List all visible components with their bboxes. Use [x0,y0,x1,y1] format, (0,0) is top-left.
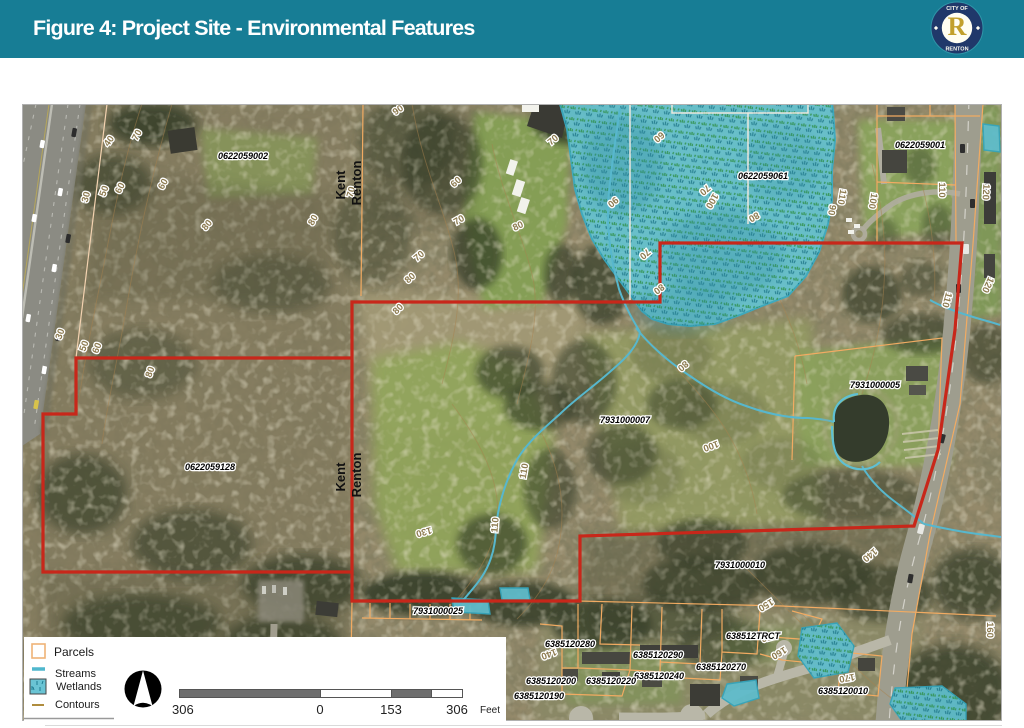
svg-text:6385120010: 6385120010 [818,686,868,696]
svg-text:Kent: Kent [333,462,348,492]
svg-text:638512TRCT: 638512TRCT [726,631,782,641]
svg-text:153: 153 [380,702,402,717]
svg-text:CITY OF: CITY OF [946,6,968,12]
svg-text:Renton: Renton [349,161,364,206]
svg-text:0622059002: 0622059002 [218,151,268,161]
svg-text:0622059001: 0622059001 [895,140,945,150]
svg-text:Parcels: Parcels [54,645,94,659]
svg-text:306: 306 [446,702,468,717]
svg-text:7931000010: 7931000010 [715,560,765,570]
svg-text:120: 120 [980,184,992,200]
svg-text:Streams: Streams [55,668,96,680]
svg-text:7931000007: 7931000007 [600,415,651,425]
svg-text:6385120290: 6385120290 [633,650,683,660]
svg-text:110: 110 [489,517,501,533]
svg-text:R: R [948,12,967,41]
svg-text:7931000005: 7931000005 [850,380,901,390]
svg-text:0622059061: 0622059061 [738,171,788,181]
svg-text:90: 90 [825,204,838,216]
svg-text:Feet: Feet [480,705,500,716]
svg-text:Kent: Kent [333,170,348,200]
svg-text:6385120270: 6385120270 [696,662,746,672]
svg-text:6385120240: 6385120240 [634,671,684,681]
svg-text:0: 0 [316,702,323,717]
svg-text:6385120190: 6385120190 [514,691,564,701]
svg-text:306: 306 [172,702,194,717]
svg-text:6385120200: 6385120200 [526,676,576,686]
svg-text:Renton: Renton [349,453,364,498]
svg-text:0622059128: 0622059128 [185,462,235,472]
svg-text:Contours: Contours [55,699,100,711]
svg-text:6385120220: 6385120220 [586,676,636,686]
svg-text:RENTON: RENTON [945,47,968,53]
svg-text:7931000025: 7931000025 [413,606,464,616]
svg-text:Wetlands: Wetlands [56,681,102,693]
svg-text:6385120280: 6385120280 [545,639,595,649]
svg-text:110: 110 [936,182,947,197]
svg-text:160: 160 [984,622,995,638]
